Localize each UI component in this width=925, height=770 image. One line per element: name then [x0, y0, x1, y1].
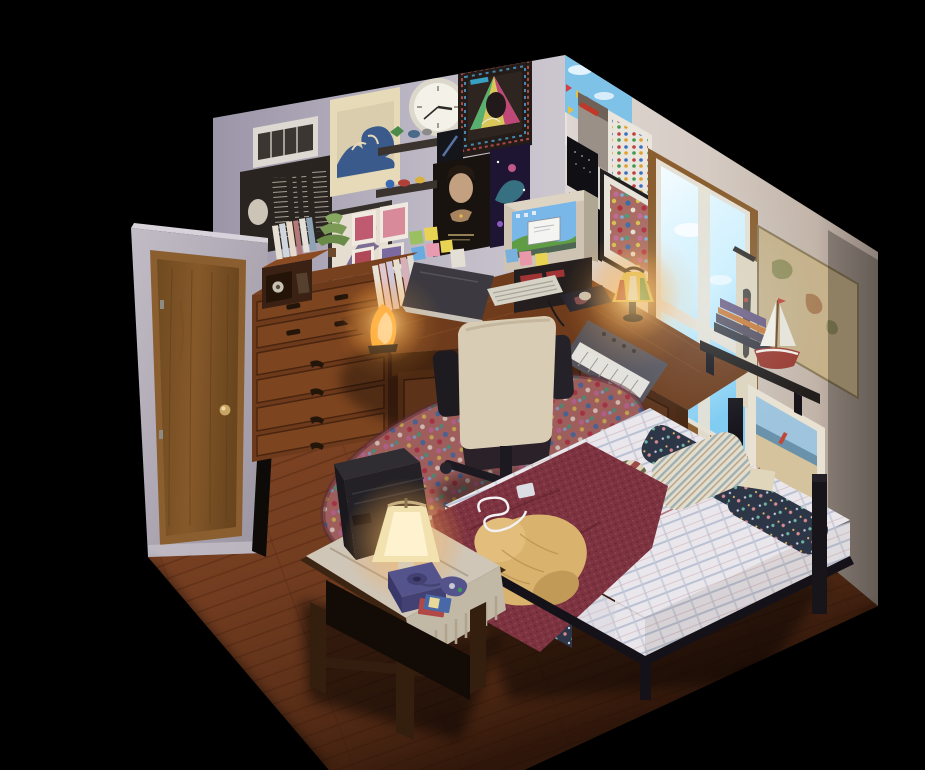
bedroom-render	[0, 0, 925, 770]
door-hinge	[160, 300, 164, 309]
small-note	[450, 249, 466, 268]
door	[150, 250, 246, 545]
bed-leg	[640, 658, 651, 700]
entry-wall	[131, 223, 268, 557]
isometric-room	[0, 0, 925, 770]
door-hinge	[159, 430, 163, 439]
bed-post-head	[812, 480, 827, 614]
window-glow	[576, 180, 836, 440]
small-dark-print	[437, 128, 463, 164]
monitor-sticky-note	[505, 248, 519, 263]
salt-wall-glow	[333, 271, 443, 381]
monitor-sticky-note	[519, 251, 532, 266]
door-knob	[220, 405, 231, 416]
